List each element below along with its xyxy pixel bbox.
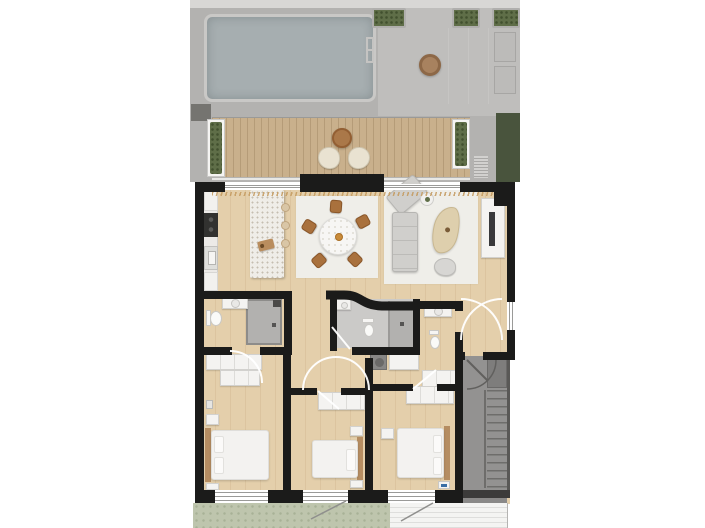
door-leaf-bedroom-middle [318,391,339,409]
leader-line-2 [401,503,433,521]
leader-line-1 [311,501,346,519]
floorplan-canvas [0,0,705,528]
door-leaf-stairwell [467,360,488,381]
plan-line-overlay [0,0,705,528]
door-arc-hall-right [336,357,369,390]
door-arc-bath-left [230,351,262,383]
door-arc-hall-left [303,357,336,390]
door-leaf-bedroom-right [413,370,436,389]
door-leaf-bath-middle [332,327,350,349]
curved-wall [326,295,416,306]
